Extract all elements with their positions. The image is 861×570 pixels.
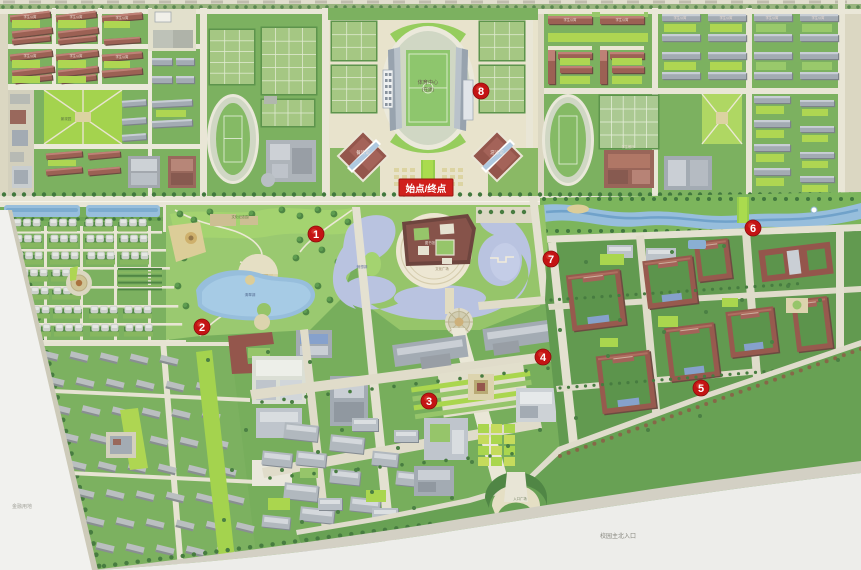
svg-text:7: 7 bbox=[548, 254, 554, 266]
svg-text:始点/终点: 始点/终点 bbox=[406, 183, 447, 195]
svg-text:6: 6 bbox=[750, 223, 756, 235]
svg-text:2: 2 bbox=[199, 322, 205, 334]
svg-text:5: 5 bbox=[698, 383, 704, 395]
svg-text:4: 4 bbox=[540, 352, 547, 364]
svg-text:3: 3 bbox=[426, 396, 432, 408]
svg-text:8: 8 bbox=[478, 86, 484, 98]
svg-text:1: 1 bbox=[313, 229, 319, 241]
